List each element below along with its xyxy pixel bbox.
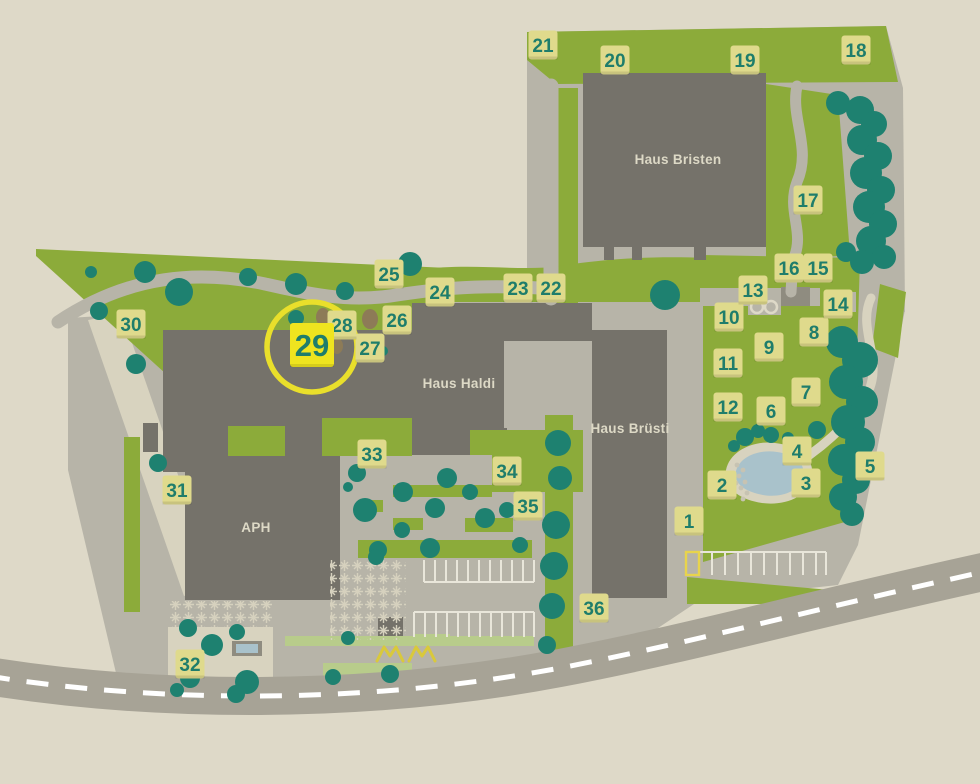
marker-number: 2 bbox=[717, 476, 728, 497]
marker-number: 26 bbox=[386, 311, 407, 332]
marker-number: 14 bbox=[827, 295, 849, 316]
map-marker-36[interactable]: 36 bbox=[580, 594, 609, 623]
map-marker-33[interactable]: 33 bbox=[358, 440, 387, 469]
map-marker-5[interactable]: 5 bbox=[856, 452, 885, 481]
marker-number: 31 bbox=[166, 481, 188, 502]
bench-top bbox=[236, 644, 258, 653]
marker-number: 22 bbox=[540, 279, 561, 300]
map-marker-14[interactable]: 14 bbox=[824, 290, 853, 319]
map-marker-9[interactable]: 9 bbox=[755, 333, 784, 362]
marker-number: 23 bbox=[507, 279, 528, 300]
marker-number: 27 bbox=[359, 339, 380, 360]
marker-number: 29 bbox=[295, 328, 329, 363]
map-marker-22[interactable]: 22 bbox=[537, 274, 566, 303]
map-marker-6[interactable]: 6 bbox=[757, 397, 786, 426]
map-marker-10[interactable]: 10 bbox=[715, 303, 744, 332]
site-plan-svg: 1234567891011121314151617181920212223242… bbox=[0, 0, 980, 784]
marker-number: 10 bbox=[718, 308, 739, 329]
map-marker-24[interactable]: 24 bbox=[426, 278, 455, 307]
map-marker-27[interactable]: 27 bbox=[356, 334, 385, 363]
map-marker-8[interactable]: 8 bbox=[800, 318, 829, 347]
map-marker-17[interactable]: 17 bbox=[794, 186, 823, 215]
map-marker-25[interactable]: 25 bbox=[375, 260, 404, 289]
map-marker-16[interactable]: 16 bbox=[775, 254, 804, 283]
map-marker-32[interactable]: 32 bbox=[176, 650, 205, 679]
map-marker-13[interactable]: 13 bbox=[739, 276, 768, 305]
building-label: APH bbox=[241, 520, 270, 535]
marker-number: 32 bbox=[179, 655, 200, 676]
marker-number: 30 bbox=[120, 315, 141, 336]
marker-number: 36 bbox=[583, 599, 604, 620]
marker-number: 34 bbox=[496, 462, 518, 483]
marker-number: 18 bbox=[845, 41, 866, 62]
building-label: Haus Bristen bbox=[635, 152, 722, 167]
marker-number: 8 bbox=[809, 323, 820, 344]
map-marker-31[interactable]: 31 bbox=[163, 476, 192, 505]
map-marker-34[interactable]: 34 bbox=[493, 457, 522, 486]
marker-number: 16 bbox=[778, 259, 799, 280]
map-marker-11[interactable]: 11 bbox=[714, 349, 743, 378]
map-marker-26[interactable]: 26 bbox=[383, 306, 412, 335]
marker-number: 1 bbox=[684, 512, 695, 533]
marker-number: 24 bbox=[429, 283, 451, 304]
marker-number: 25 bbox=[378, 265, 400, 286]
marker-number: 6 bbox=[766, 402, 777, 423]
marker-number: 4 bbox=[792, 442, 803, 463]
marker-number: 20 bbox=[604, 51, 625, 72]
map-marker-29[interactable]: 29 bbox=[290, 323, 334, 367]
building-label: Haus Brüsti bbox=[590, 421, 669, 436]
marker-number: 33 bbox=[361, 445, 382, 466]
map-marker-35[interactable]: 35 bbox=[514, 492, 543, 521]
map-marker-2[interactable]: 2 bbox=[708, 471, 737, 500]
marker-number: 13 bbox=[742, 281, 763, 302]
map-marker-18[interactable]: 18 bbox=[842, 36, 871, 65]
marker-number: 19 bbox=[734, 51, 755, 72]
site-plan: 1234567891011121314151617181920212223242… bbox=[0, 0, 980, 784]
map-marker-15[interactable]: 15 bbox=[804, 254, 833, 283]
marker-number: 21 bbox=[532, 36, 554, 57]
marker-number: 11 bbox=[718, 354, 739, 375]
building-label: Haus Haldi bbox=[423, 376, 496, 391]
map-marker-21[interactable]: 21 bbox=[529, 31, 558, 60]
marker-number: 28 bbox=[331, 316, 352, 337]
map-marker-12[interactable]: 12 bbox=[714, 393, 743, 422]
map-marker-23[interactable]: 23 bbox=[504, 274, 533, 303]
map-marker-30[interactable]: 30 bbox=[117, 310, 146, 339]
map-marker-7[interactable]: 7 bbox=[792, 378, 821, 407]
marker-number: 3 bbox=[801, 474, 812, 495]
marker-number: 17 bbox=[797, 191, 818, 212]
map-marker-20[interactable]: 20 bbox=[601, 46, 630, 75]
map-marker-1[interactable]: 1 bbox=[675, 507, 704, 536]
marker-number: 7 bbox=[801, 383, 812, 404]
map-marker-4[interactable]: 4 bbox=[783, 437, 812, 466]
marker-number: 12 bbox=[717, 398, 738, 419]
marker-number: 15 bbox=[807, 259, 829, 280]
map-marker-19[interactable]: 19 bbox=[731, 46, 760, 75]
marker-number: 35 bbox=[517, 497, 539, 518]
map-marker-3[interactable]: 3 bbox=[792, 469, 821, 498]
marker-number: 5 bbox=[865, 457, 876, 478]
marker-number: 9 bbox=[764, 338, 775, 359]
